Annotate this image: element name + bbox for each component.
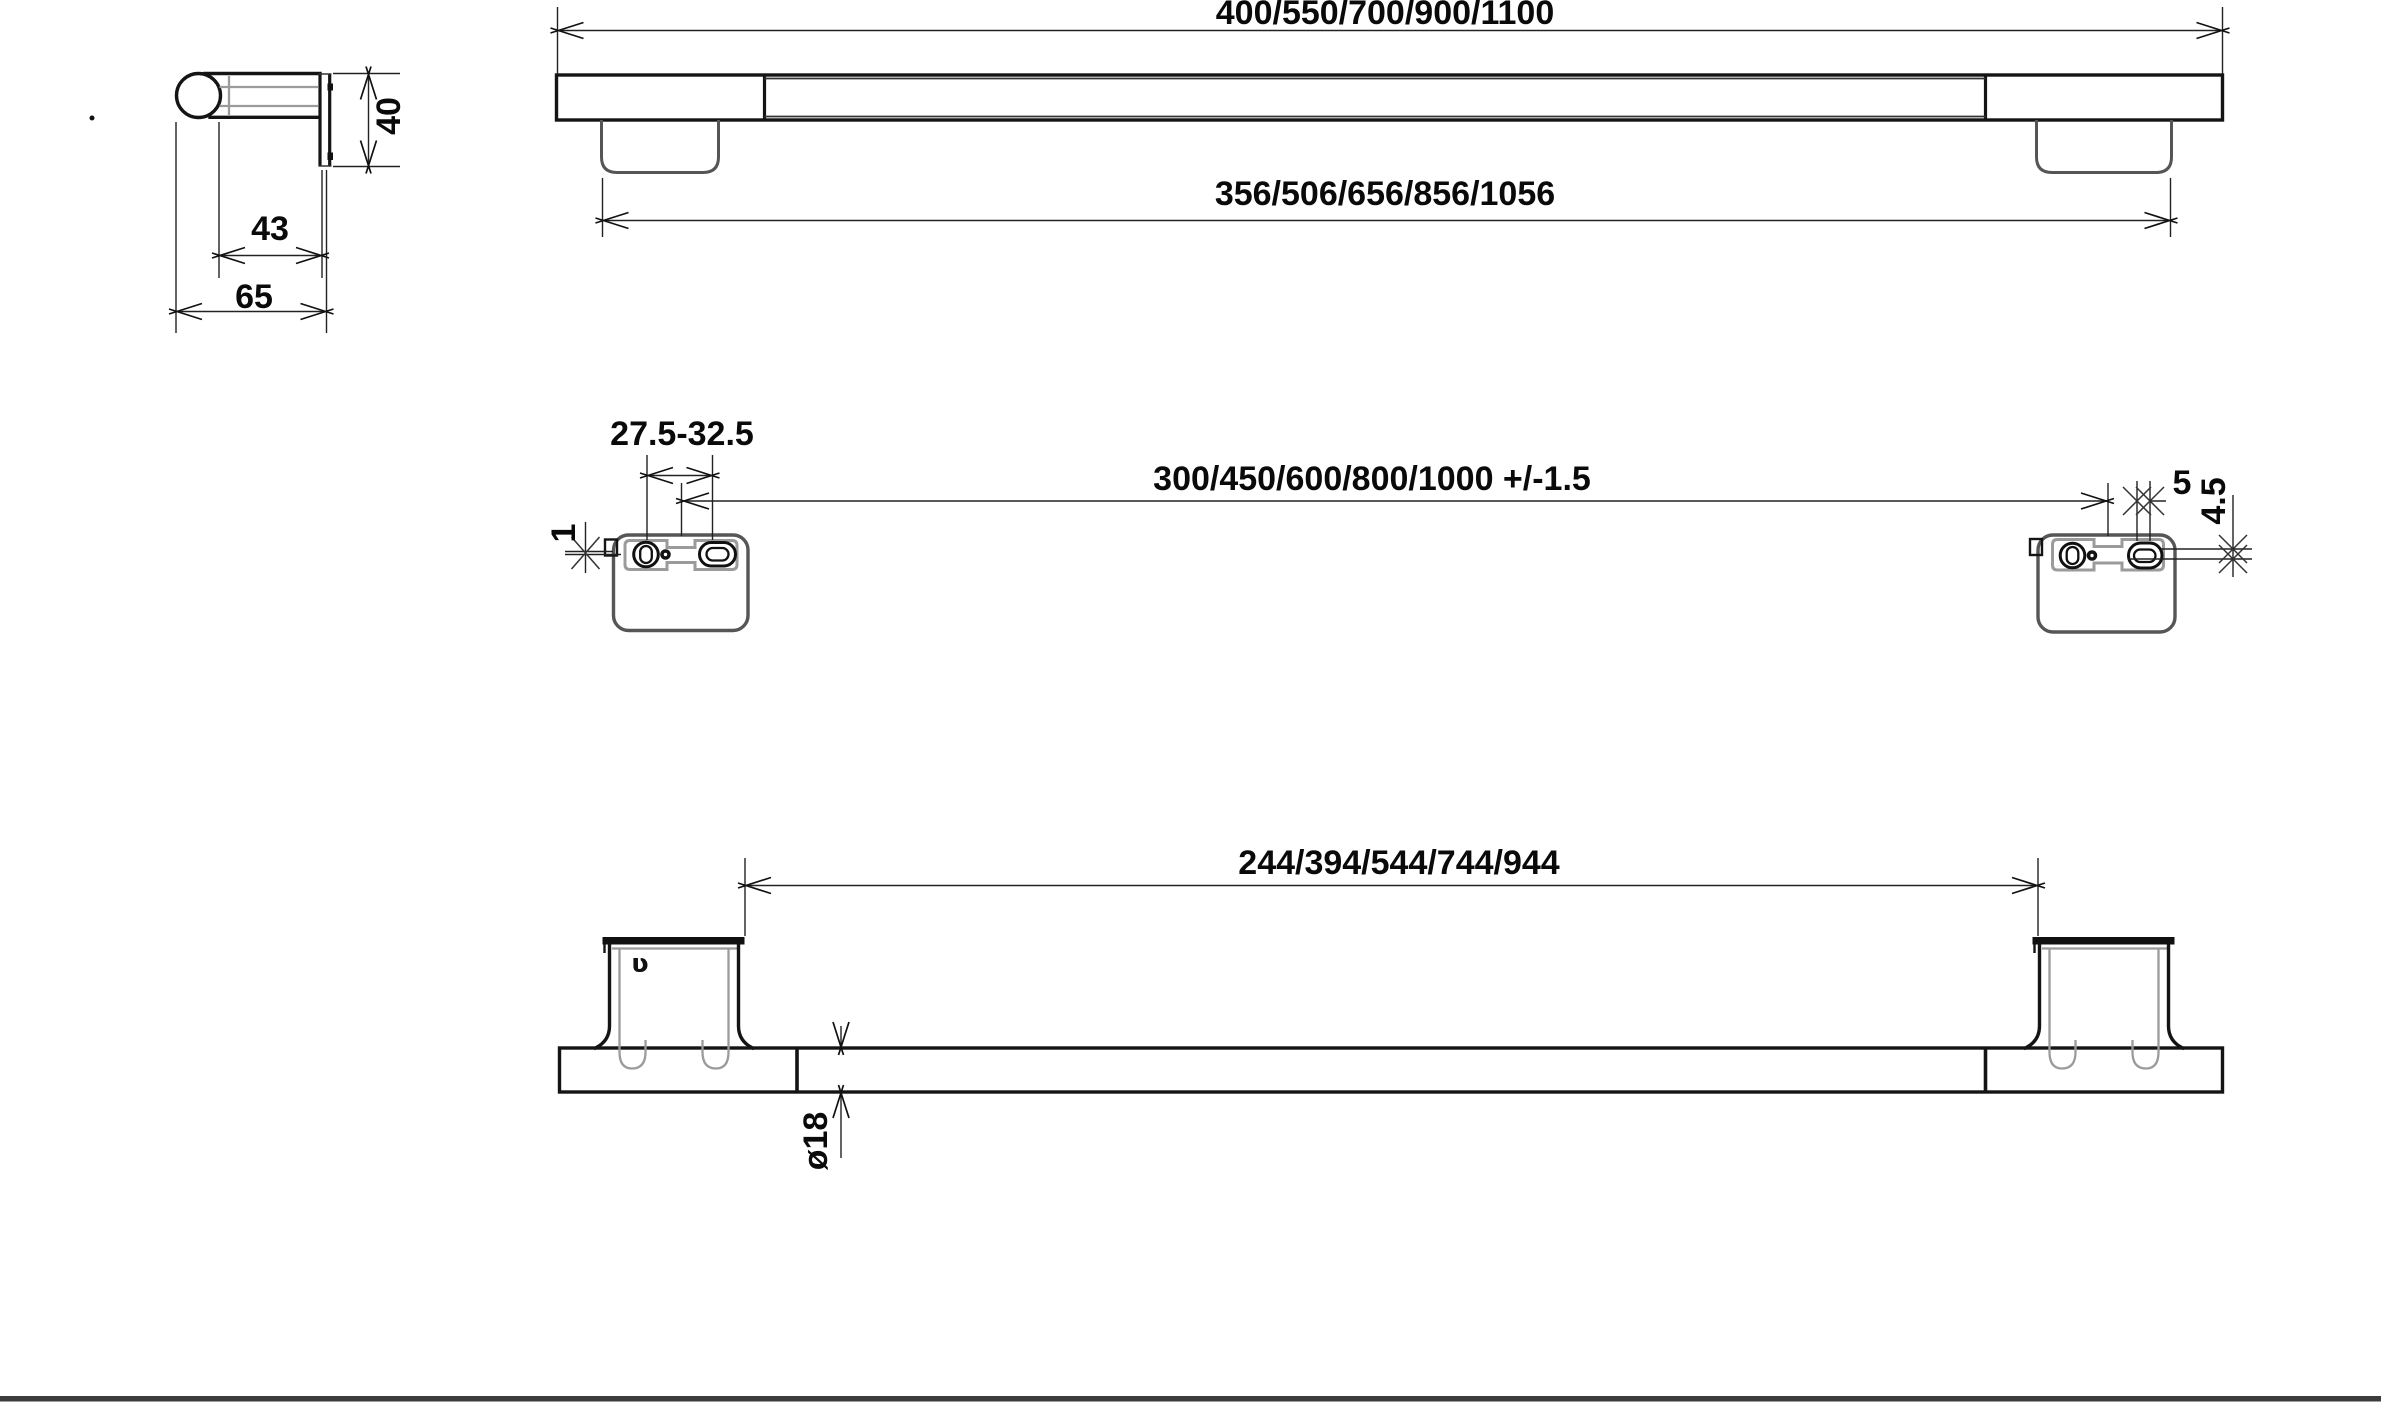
towel-bar-dimension-drawing: 40 43 65 400/550/700/900/1100 356/506/65… <box>0 0 2381 1404</box>
dim-label-body-length: 356/506/656/856/1056 <box>1215 175 1555 213</box>
bar-end-circle <box>177 74 221 118</box>
bottom-view: ʋ 244/394/544/744/944 ø18 <box>560 844 2223 1170</box>
dimension-side-depths: 43 65 <box>169 122 334 333</box>
dimension-front-body: 356/506/656/856/1056 <box>596 175 2178 237</box>
right-bracket-cap <box>2033 937 2175 945</box>
dimension-bar-diameter: ø18 <box>797 1022 849 1170</box>
right-bracket-front <box>2037 120 2172 173</box>
page-bottom-rule <box>0 1396 2381 1402</box>
stray-dot <box>90 116 95 121</box>
dim-label-slot-height: 4.5 <box>2195 477 2233 524</box>
side-view: 40 43 65 <box>90 67 409 334</box>
dim-label-overall-length: 400/550/700/900/1100 <box>1216 0 1554 32</box>
dimension-bottom-span: 244/394/544/744/944 <box>738 844 2045 936</box>
right-plate-body <box>2038 535 2175 632</box>
bar-front-outline <box>557 75 2223 120</box>
left-mounting-plate <box>605 535 748 631</box>
right-pin-hole-center <box>2090 554 2093 557</box>
dimension-slot-width: 5 <box>2123 464 2191 541</box>
mount-tab-top <box>328 84 334 91</box>
mount-tab-bottom <box>328 153 334 161</box>
left-pin-hole-center <box>664 553 667 556</box>
dimension-front-overall: 400/550/700/900/1100 <box>551 0 2230 74</box>
dim-label-bar-diameter: ø18 <box>797 1112 835 1171</box>
bar-profile-inner-lines <box>220 76 319 115</box>
dim-label-65: 65 <box>235 278 273 316</box>
dim-label-slot-width: 5 <box>2173 464 2192 502</box>
dimension-mounting-centers: 300/450/600/800/1000 +/-1.5 <box>676 460 2114 536</box>
dim-label-bottom-span: 244/394/544/744/944 <box>1238 844 1560 882</box>
dim-label-adjust-range: 27.5-32.5 <box>610 415 754 453</box>
bar-profile-outline <box>205 74 320 118</box>
dim-label-40: 40 <box>370 97 408 135</box>
dim-label-clip-offset: 1 <box>545 524 583 543</box>
front-view: 400/550/700/900/1100 356/506/656/856/105… <box>551 0 2230 237</box>
bracket-clip-mark: ʋ <box>631 949 648 979</box>
dimension-clip-offset: 1 <box>545 522 621 573</box>
left-bracket-front <box>602 120 719 173</box>
technical-drawing-canvas: 40 43 65 400/550/700/900/1100 356/506/65… <box>0 0 2381 1404</box>
bar-bottom-outline <box>560 1048 2223 1092</box>
right-mounting-plate <box>2030 535 2175 632</box>
dim-label-mounting-centers: 300/450/600/800/1000 +/-1.5 <box>1153 460 1591 498</box>
dim-label-43: 43 <box>251 210 289 248</box>
mounting-plate-view: 27.5-32.5 300/450/600/800/1000 +/-1.5 1 … <box>545 415 2252 632</box>
dimension-side-height: 40 <box>333 67 408 174</box>
left-bracket-cap <box>603 937 745 945</box>
